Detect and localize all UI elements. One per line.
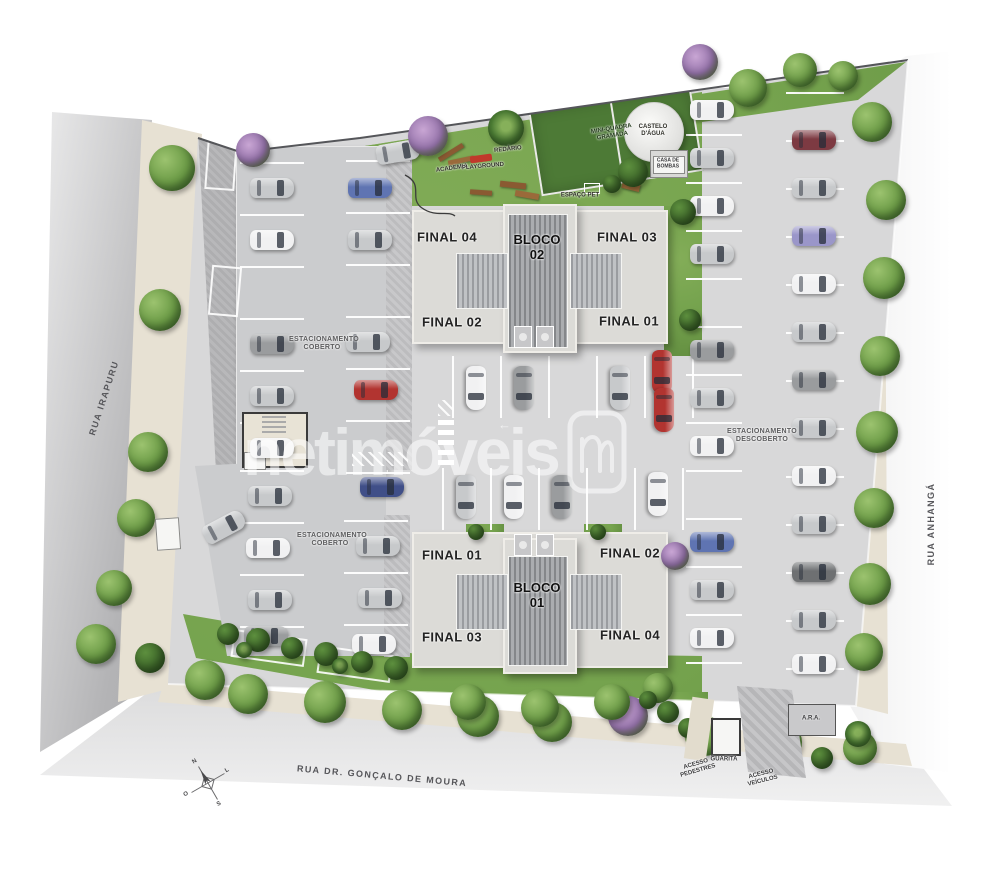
tree [618,157,648,187]
car [250,334,294,354]
car [792,226,836,246]
ara-box [788,704,836,736]
tree [845,633,883,671]
tree [729,69,767,107]
tree [590,524,606,540]
car [690,148,734,168]
tree [236,133,270,167]
car [792,370,836,390]
bloco01-roof-center [508,556,568,666]
car [792,514,836,534]
bloco02-roof-right [570,253,622,309]
car [250,230,294,250]
car [792,418,836,438]
car [690,388,734,408]
tree [811,747,833,769]
car [248,486,292,506]
bloco02-lobby-1 [514,326,532,348]
hatched-crossing-1 [438,400,454,416]
pump-house-sign [653,156,685,174]
pet-fence [584,183,600,194]
car [248,590,292,610]
car [792,274,836,294]
car [358,588,402,608]
car [690,628,734,648]
tree [468,524,484,540]
moto-stall-outline-1 [204,139,237,191]
hatched-crossing-2 [352,452,408,466]
car [354,380,398,400]
tree [661,542,689,570]
car [792,322,836,342]
walking-path [400,170,460,220]
tree [488,110,524,146]
tree [682,44,718,80]
tree [521,689,559,727]
car [654,388,674,432]
stairs [262,416,286,436]
car [690,340,734,360]
tree [639,691,657,709]
tree [149,145,195,191]
tree [679,309,701,331]
tree [866,180,906,220]
car [356,536,400,556]
car [346,332,390,352]
car [552,475,572,519]
car [348,178,392,198]
car [348,230,392,250]
car [690,100,734,120]
tree [332,658,348,674]
bloco02-lobby-2 [536,326,554,348]
tree [845,721,871,747]
car [792,610,836,630]
car [648,472,668,516]
tree [382,690,422,730]
tree [281,637,303,659]
tree [854,488,894,528]
bloco01-lobby-1 [514,534,532,556]
tree [117,499,155,537]
car [792,178,836,198]
car [514,366,534,410]
tree [783,53,817,87]
lane-arrow: ← [498,417,511,432]
car [792,654,836,674]
utility-box-sidewalk [155,517,181,551]
tree [594,684,630,720]
tree [670,199,696,225]
car [246,538,290,558]
car [250,386,294,406]
tree [135,643,165,673]
tree [217,623,239,645]
tree [603,175,621,193]
car [690,532,734,552]
tree [450,684,486,720]
guard-house [711,718,741,756]
tree [856,411,898,453]
site-plan: ← [0,0,991,892]
car [690,580,734,600]
car [504,475,524,519]
car [250,438,294,458]
car [466,366,486,410]
car [690,244,734,264]
car [690,436,734,456]
car [610,366,630,410]
car [792,562,836,582]
tree [76,624,116,664]
tree [657,701,679,723]
bloco01-lobby-2 [536,534,554,556]
tree [128,432,168,472]
bloco02-roof-left [456,253,508,309]
tree [849,563,891,605]
tree [96,570,132,606]
moto-stall-outline-2 [208,265,242,317]
crosswalk [438,420,454,466]
tree [828,61,858,91]
car [250,178,294,198]
tree [863,257,905,299]
tree [236,642,252,658]
tree [228,674,268,714]
bloco01-roof-right [570,574,622,630]
tree [351,651,373,673]
tree [139,289,181,331]
tree [860,336,900,376]
tree [185,660,225,700]
tree [304,681,346,723]
tree [384,656,408,680]
car [792,130,836,150]
tree [408,116,448,156]
car [792,466,836,486]
bloco01-roof-left [456,574,508,630]
car [456,475,476,519]
car [690,196,734,216]
tree [852,102,892,142]
car [360,477,404,497]
